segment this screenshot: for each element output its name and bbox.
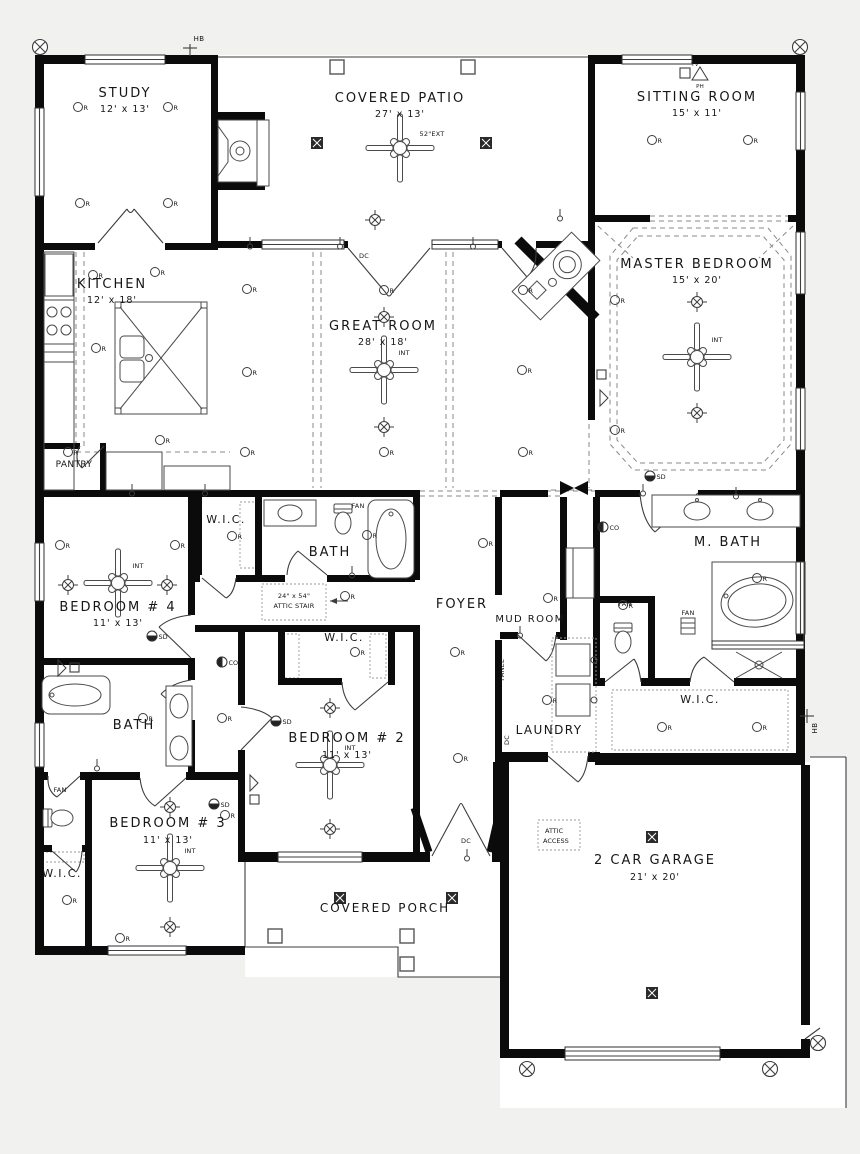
room-label-wic-4: W.I.C. bbox=[206, 513, 245, 526]
room-label-kitchen: KITCHEN bbox=[77, 277, 147, 292]
room-label-covered-porch: COVERED PORCH bbox=[320, 901, 450, 915]
fan-label: FAN bbox=[618, 600, 631, 608]
vanity bbox=[264, 500, 316, 526]
window bbox=[278, 852, 362, 862]
room-label-wic-2: W.I.C. bbox=[324, 631, 363, 644]
hose-bib-label: HB bbox=[811, 723, 819, 734]
ceiling-light-icon bbox=[646, 831, 658, 843]
fan-int-label: INT bbox=[344, 744, 355, 752]
window bbox=[35, 108, 44, 196]
dryer bbox=[556, 684, 590, 716]
room-label-foyer: FOYER bbox=[436, 597, 488, 612]
room-dims-great-room: 28' x 18' bbox=[358, 337, 408, 348]
room-label-master-bath: M. BATH bbox=[694, 535, 762, 550]
room-label-covered-patio: COVERED PATIO bbox=[335, 91, 465, 106]
window bbox=[622, 55, 692, 64]
room-label-bedroom-3: BEDROOM # 3 bbox=[109, 816, 226, 831]
window bbox=[35, 543, 44, 601]
washer bbox=[556, 644, 590, 676]
post-icon bbox=[400, 957, 414, 971]
co-detector-icon bbox=[598, 522, 619, 532]
base-cabinet bbox=[164, 466, 230, 490]
window bbox=[262, 240, 344, 249]
room-label-sitting-room: SITTING ROOM bbox=[637, 90, 757, 105]
room-dims-master-bedroom: 15' x 20' bbox=[672, 275, 722, 286]
fan-label: FAN bbox=[681, 609, 694, 617]
base-cabinet bbox=[106, 452, 162, 490]
window bbox=[432, 240, 498, 249]
room-label-master-wic: W.I.C. bbox=[680, 693, 719, 706]
room-dims-sitting-room: 15' x 11' bbox=[672, 108, 722, 119]
post-icon bbox=[461, 60, 475, 74]
room-label-laundry: LAUNDRY bbox=[516, 723, 583, 737]
room-label-study: STUDY bbox=[99, 86, 152, 101]
window bbox=[796, 388, 805, 450]
room-dims-covered-patio: 27' x 13' bbox=[375, 109, 425, 120]
post-icon bbox=[400, 929, 414, 943]
window bbox=[35, 723, 44, 767]
wall-light-icon bbox=[480, 137, 492, 149]
fan-int-label: INT bbox=[398, 349, 409, 357]
flood-light-icon bbox=[763, 1062, 778, 1077]
room-label-garage: 2 CAR GARAGE bbox=[594, 853, 716, 868]
wall-light-icon bbox=[311, 137, 323, 149]
toilet bbox=[334, 504, 352, 534]
fan-label: FAN bbox=[351, 502, 364, 510]
window bbox=[85, 55, 165, 64]
attic-stair-size-label: 24" x 54" bbox=[278, 592, 310, 600]
toilet bbox=[614, 623, 632, 653]
room-label-hall-bath: BATH bbox=[309, 545, 352, 560]
ceiling-light-icon bbox=[646, 987, 658, 999]
double-vanity bbox=[652, 495, 800, 527]
room-label-great-room: GREAT ROOM bbox=[329, 319, 437, 334]
room-dims-bedroom-3: 11' x 13' bbox=[143, 835, 193, 846]
room-dims-garage: 21' x 20' bbox=[630, 872, 680, 883]
bathtub bbox=[42, 676, 110, 714]
hose-bib-label: HB bbox=[194, 35, 205, 43]
cooktop bbox=[44, 300, 74, 362]
room-dims-kitchen: 12' x 18' bbox=[87, 295, 137, 306]
room-dims-study: 12' x 13' bbox=[100, 104, 150, 115]
window bbox=[108, 946, 186, 955]
fan-int-label: INT bbox=[184, 847, 195, 855]
vanity bbox=[166, 686, 192, 766]
attic-access-label: ACCESS bbox=[543, 837, 569, 845]
room-label-mud-room: MUD ROOM bbox=[495, 614, 564, 625]
door-chime-label: DC bbox=[359, 252, 369, 260]
flood-light-icon bbox=[793, 40, 808, 55]
fan-int-label: INT bbox=[132, 562, 143, 570]
room-label-bath-3: BATH bbox=[113, 718, 156, 733]
flood-light-icon bbox=[520, 1062, 535, 1077]
room-label-pantry: PANTRY bbox=[56, 460, 93, 470]
post-icon bbox=[268, 929, 282, 943]
room-label-bedroom-4: BEDROOM # 4 bbox=[59, 600, 176, 615]
refrigerator bbox=[45, 254, 73, 296]
fan-ext-label: 52"EXT bbox=[420, 130, 445, 138]
tv-label: TV bbox=[690, 62, 699, 68]
door-chime-label: DC bbox=[461, 837, 471, 845]
fan-label: FAN bbox=[53, 786, 66, 794]
post-icon bbox=[330, 60, 344, 74]
window bbox=[796, 232, 805, 294]
attic-access-label: ATTIC bbox=[545, 827, 564, 835]
fan-int-label: INT bbox=[711, 336, 722, 344]
flood-light-icon bbox=[33, 40, 48, 55]
floor-plan: R SD CO bbox=[0, 0, 860, 1154]
room-label-master-bedroom: MASTER BEDROOM bbox=[620, 257, 774, 272]
floor-plan-drawing: R SD CO bbox=[0, 0, 860, 1154]
room-dims-bedroom-4: 11' x 13' bbox=[93, 618, 143, 629]
toilet bbox=[43, 809, 73, 827]
garage-door-threshold bbox=[565, 1047, 720, 1060]
flood-light-icon bbox=[811, 1036, 826, 1051]
co-detector-icon bbox=[217, 657, 238, 667]
attic-stair-label: ATTIC STAIR bbox=[274, 602, 315, 610]
panel-label: PANEL bbox=[498, 659, 506, 681]
window bbox=[796, 92, 805, 150]
room-label-wic-3: W.I.C. bbox=[42, 867, 81, 880]
phone-label: PH bbox=[696, 84, 704, 90]
study-fireplace bbox=[211, 112, 269, 190]
door-chime-label: DC bbox=[503, 735, 511, 745]
mud-bench bbox=[566, 548, 594, 598]
